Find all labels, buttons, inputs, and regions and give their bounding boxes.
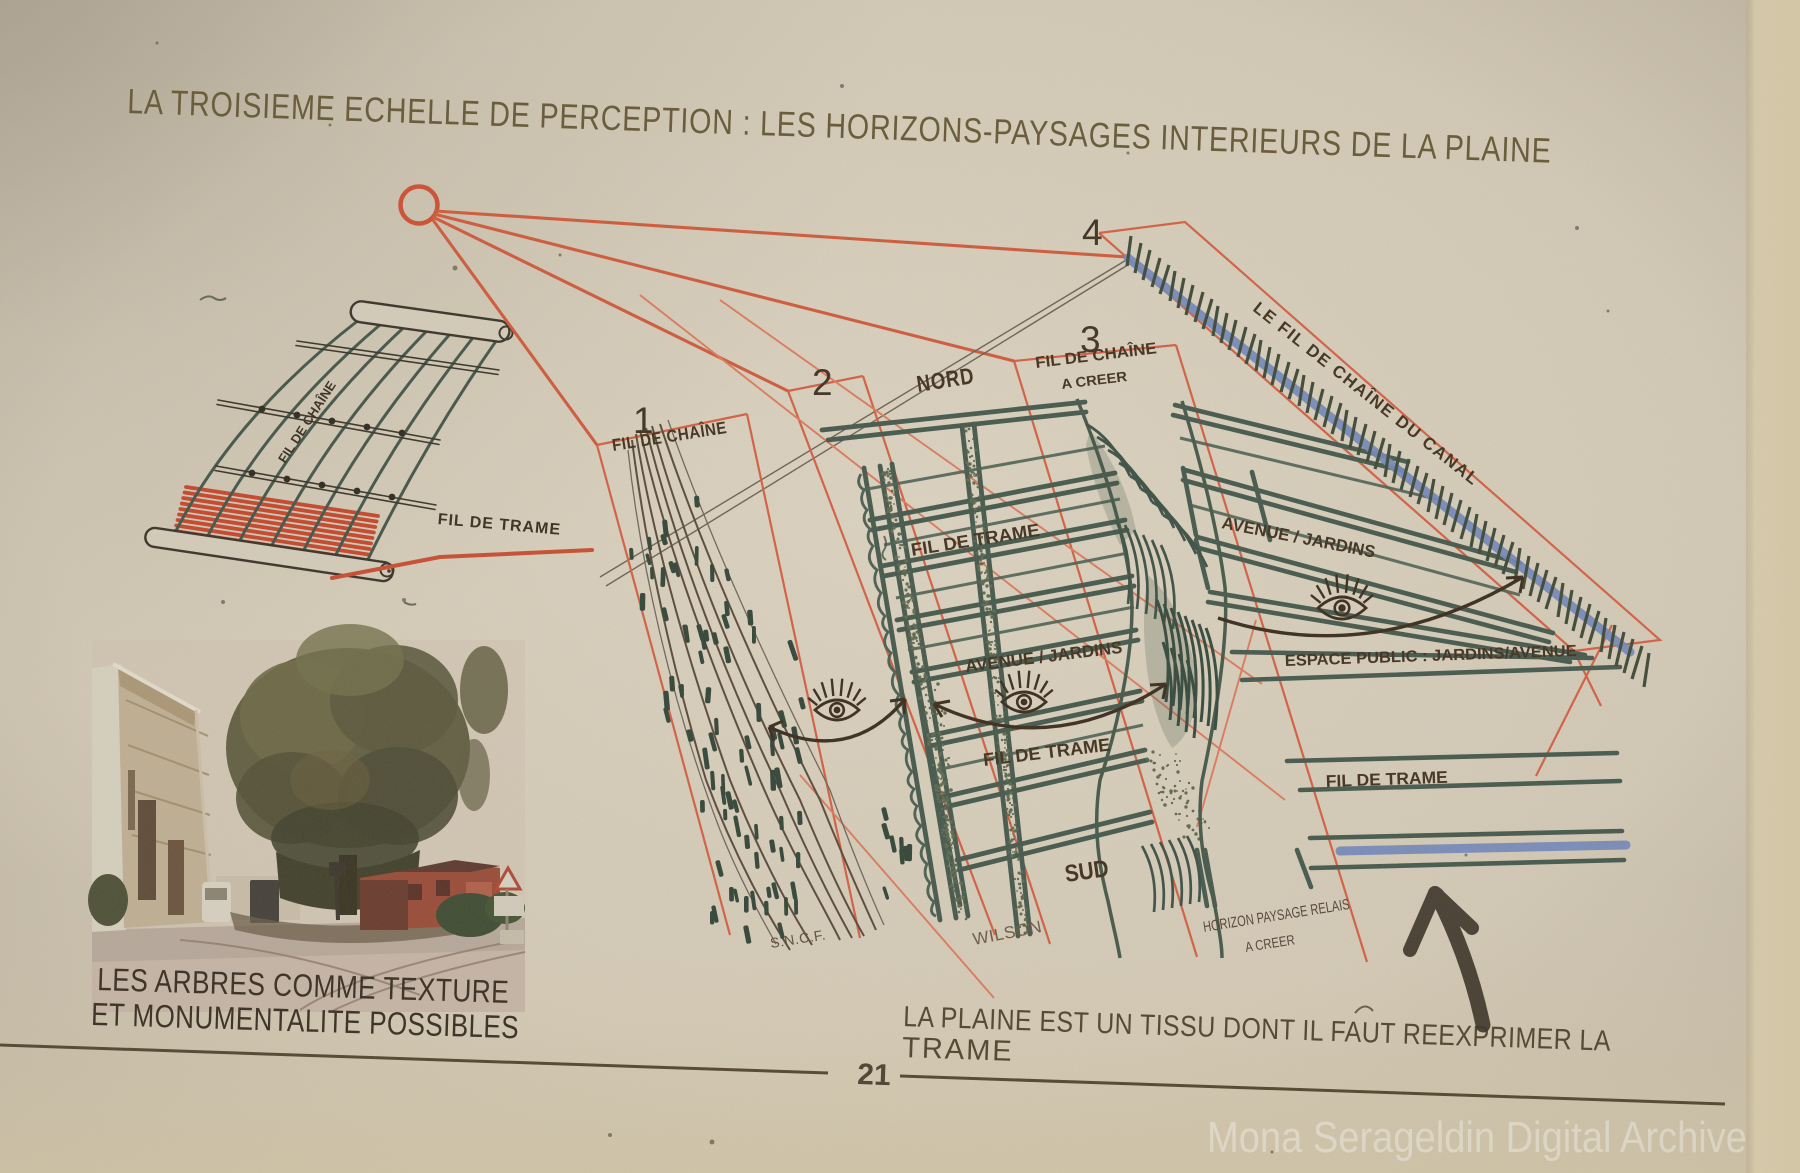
svg-text:Mona Serageldin Digital Archiv: Mona Serageldin Digital Archive	[1207, 1113, 1747, 1162]
